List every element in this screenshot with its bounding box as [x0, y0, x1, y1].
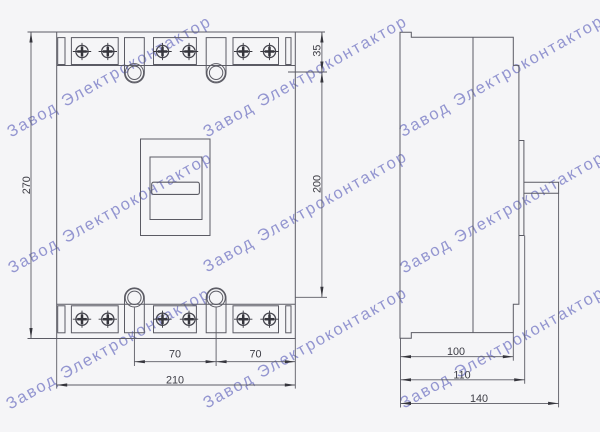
svg-text:140: 140 — [470, 393, 488, 405]
svg-text:210: 210 — [166, 374, 184, 386]
svg-text:100: 100 — [447, 346, 465, 358]
svg-text:110: 110 — [453, 370, 470, 382]
svg-text:35: 35 — [311, 45, 323, 57]
svg-text:70: 70 — [169, 349, 181, 361]
svg-text:200: 200 — [311, 175, 323, 193]
svg-text:70: 70 — [249, 349, 261, 361]
svg-text:270: 270 — [21, 176, 33, 194]
